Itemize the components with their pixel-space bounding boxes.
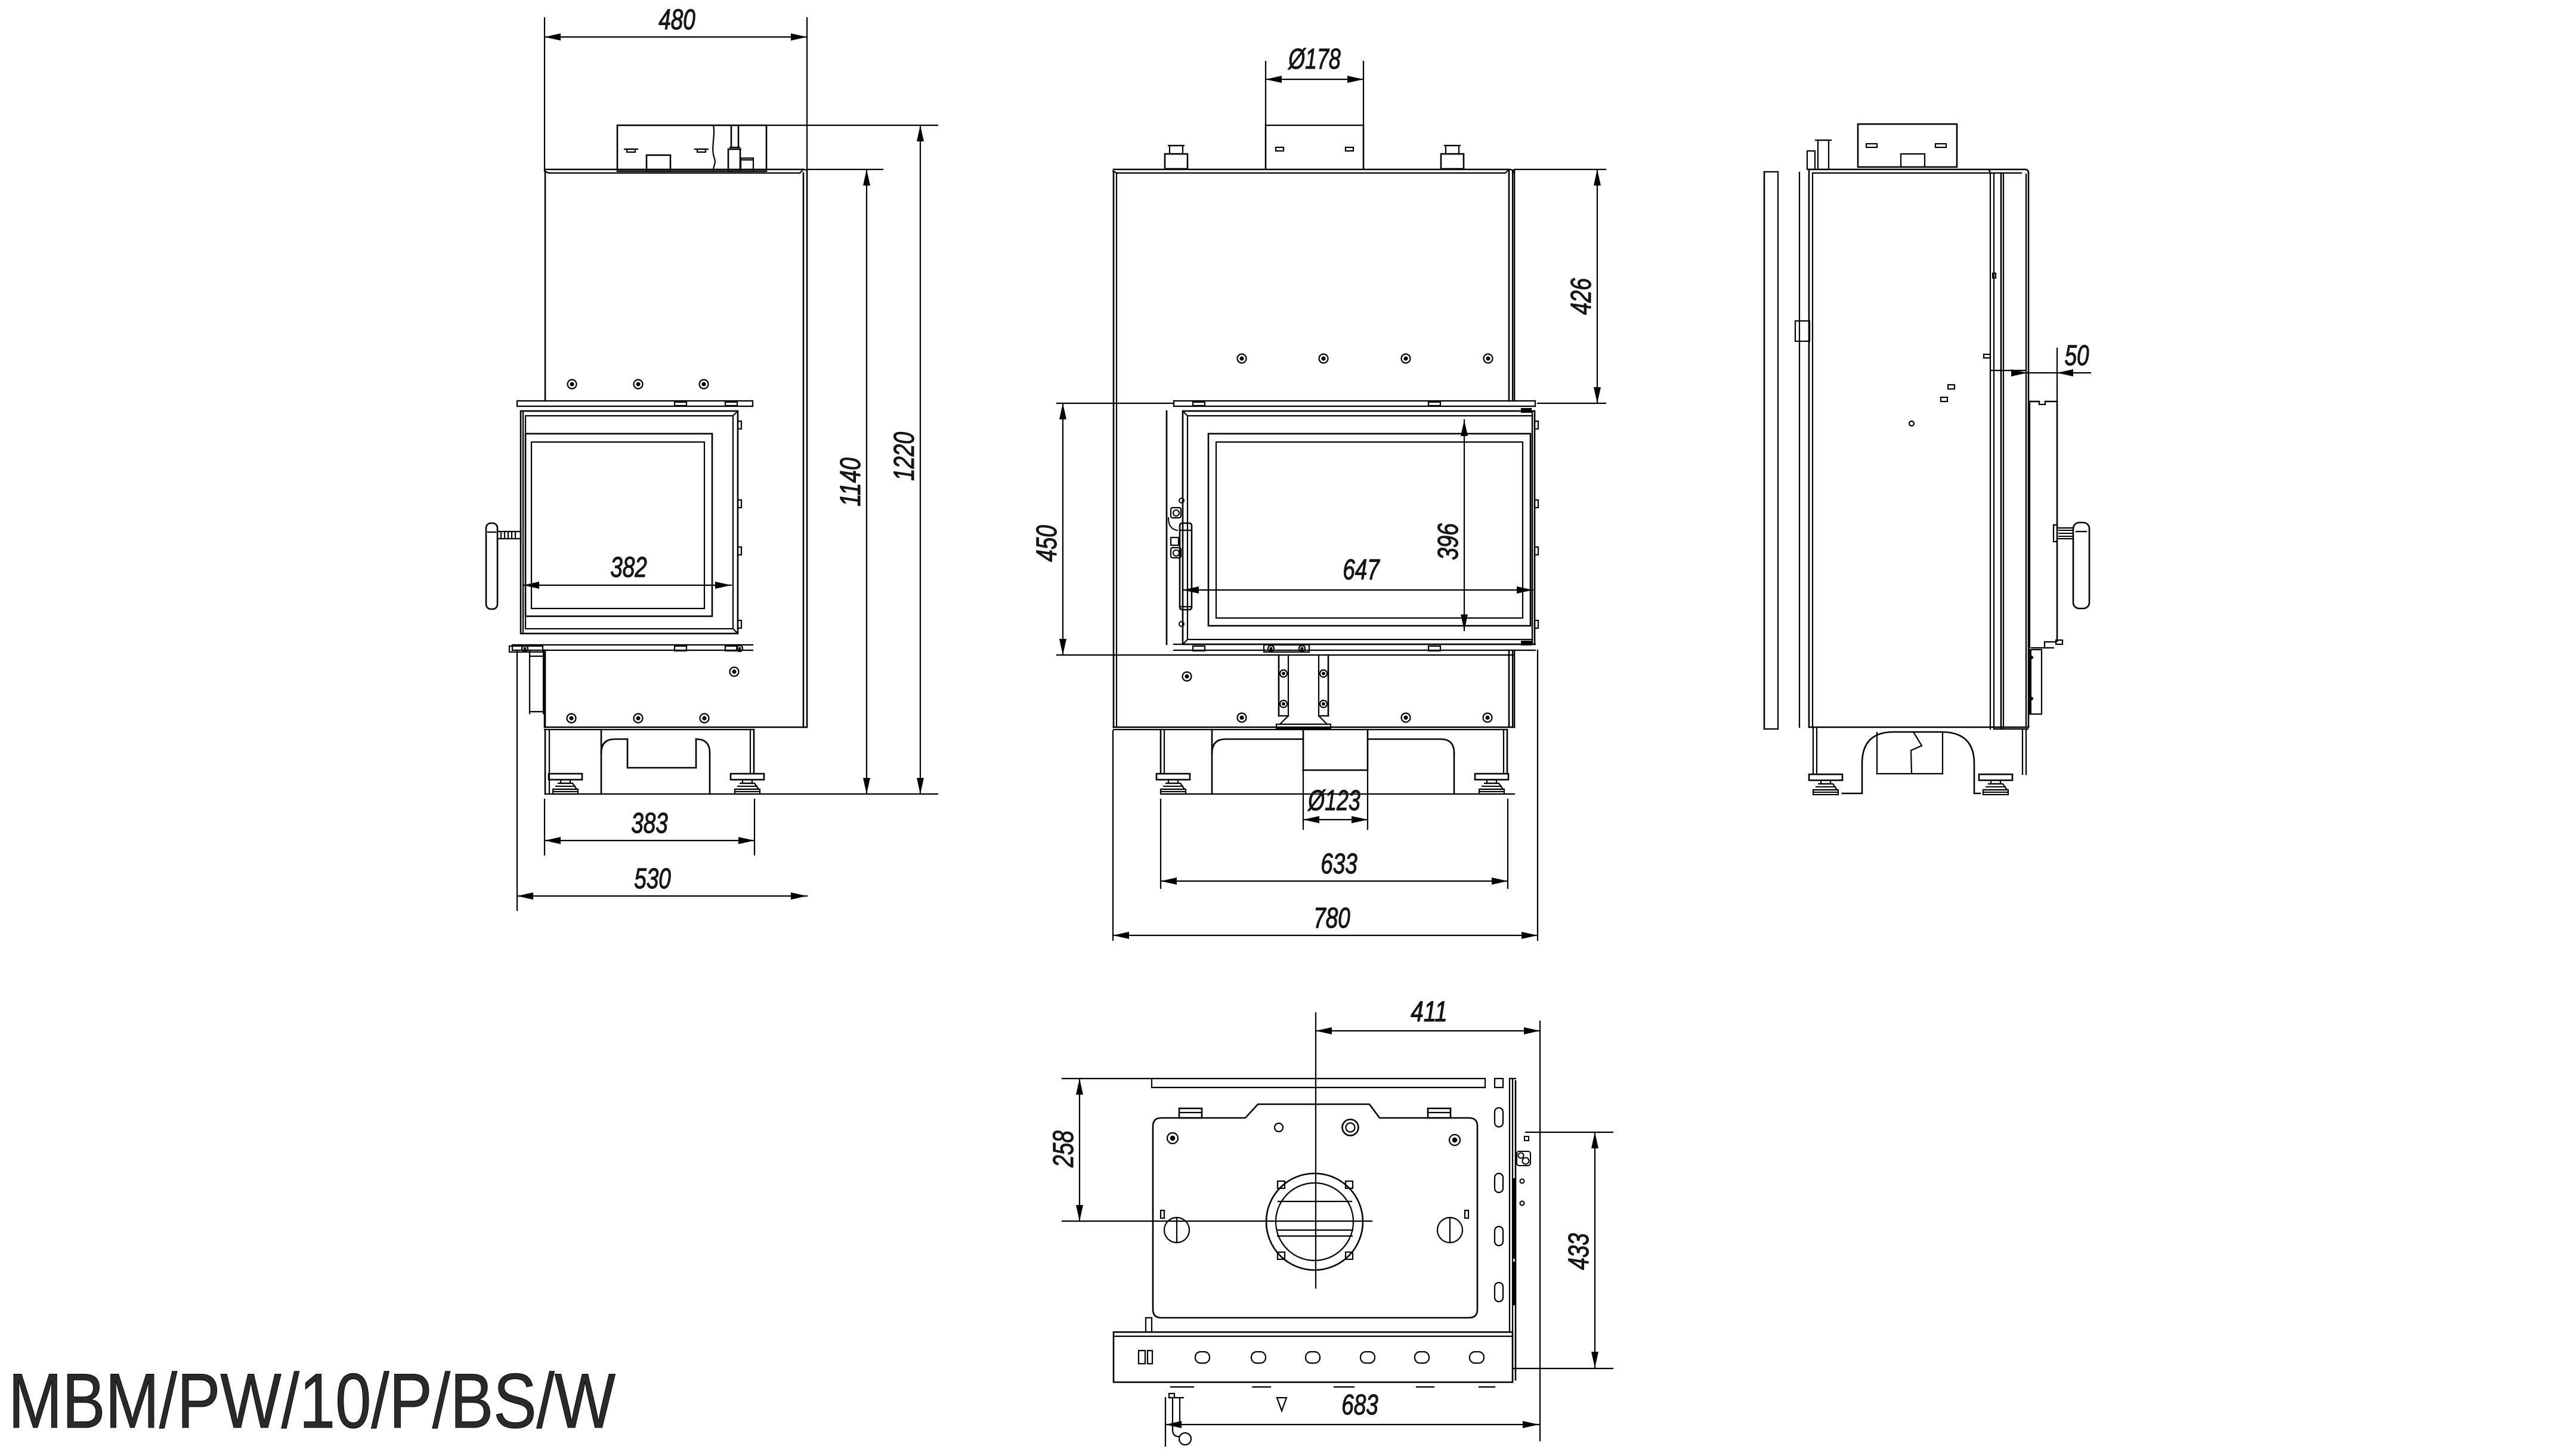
svg-text:450: 450: [1031, 525, 1063, 562]
svg-text:396: 396: [1433, 523, 1464, 560]
svg-text:258: 258: [1048, 1130, 1080, 1167]
svg-text:426: 426: [1566, 278, 1597, 315]
svg-text:Ø178: Ø178: [1288, 44, 1341, 75]
svg-text:530: 530: [634, 863, 671, 895]
svg-text:433: 433: [1563, 1233, 1595, 1270]
svg-text:MBM/PW/10/P/BS/W: MBM/PW/10/P/BS/W: [8, 1357, 616, 1444]
svg-text:1220: 1220: [889, 432, 920, 481]
svg-text:683: 683: [1341, 1389, 1378, 1421]
svg-text:383: 383: [631, 808, 668, 839]
svg-text:411: 411: [1411, 996, 1448, 1028]
svg-text:780: 780: [1313, 903, 1350, 934]
svg-text:1140: 1140: [835, 458, 867, 506]
svg-text:647: 647: [1343, 554, 1380, 586]
svg-text:480: 480: [658, 4, 695, 36]
svg-text:633: 633: [1321, 848, 1357, 880]
svg-text:Ø123: Ø123: [1307, 785, 1360, 817]
svg-text:382: 382: [610, 552, 647, 583]
svg-text:50: 50: [2065, 340, 2089, 372]
